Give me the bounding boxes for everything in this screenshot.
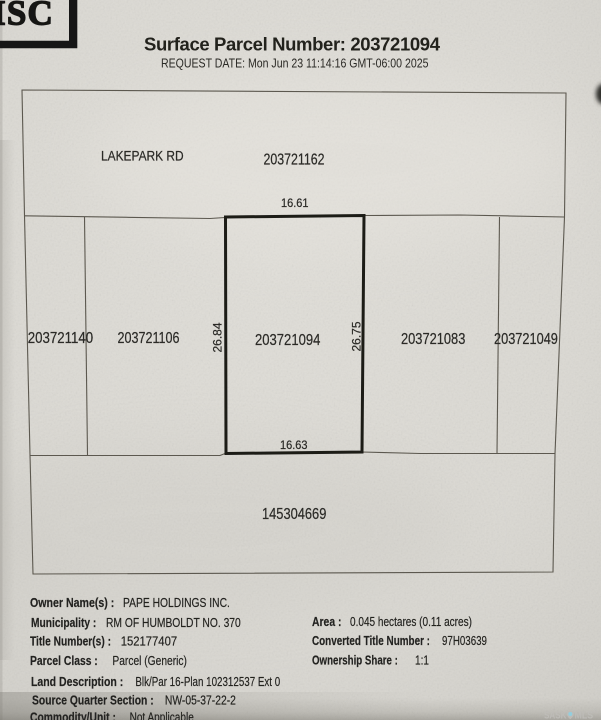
svg-text:16.61: 16.61: [281, 198, 309, 211]
svg-text:Commodity/Unit :: Commodity/Unit :: [30, 710, 116, 720]
svg-text:Converted Title Number :: Converted Title Number :: [312, 635, 430, 649]
svg-text:16.63: 16.63: [280, 440, 308, 453]
svg-text:152177407: 152177407: [121, 634, 178, 649]
svg-text:203721083: 203721083: [401, 331, 465, 348]
svg-text:ISC: ISC: [0, 0, 54, 32]
svg-text:®: ®: [594, 709, 599, 716]
svg-text:Blk/Par 16-Plan 102312537 Ext: Blk/Par 16-Plan 102312537 Ext 0: [135, 676, 280, 690]
svg-text:Area :: Area :: [312, 615, 341, 629]
svg-text:Municipality :: Municipality :: [31, 616, 96, 630]
svg-text:Parcel Class :: Parcel Class :: [30, 654, 98, 668]
svg-text:NW-05-37-22-2: NW-05-37-22-2: [165, 693, 236, 707]
svg-text:97H03639: 97H03639: [442, 635, 487, 649]
svg-text:Source Quarter Section :: Source Quarter Section :: [32, 693, 154, 707]
svg-text:Owner Name(s) :: Owner Name(s) :: [30, 595, 114, 610]
svg-text:203721049: 203721049: [494, 331, 558, 348]
svg-text:1:1: 1:1: [415, 653, 429, 668]
svg-text:145304669: 145304669: [262, 506, 326, 523]
svg-text:Parcel (Generic): Parcel (Generic): [112, 654, 187, 668]
svg-text:Title Number(s) :: Title Number(s) :: [30, 634, 111, 648]
svg-text:SASK: SASK: [544, 710, 567, 720]
svg-text:0.045 hectares (0.11 acres): 0.045 hectares (0.11 acres): [350, 615, 472, 630]
svg-text:26.75: 26.75: [350, 321, 364, 351]
svg-text:LAKEPARK RD: LAKEPARK RD: [101, 148, 184, 164]
svg-text:203721162: 203721162: [264, 150, 325, 168]
svg-text:PAPE HOLDINGS INC.: PAPE HOLDINGS INC.: [123, 596, 230, 610]
svg-text:RM OF HUMBOLDT NO. 370: RM OF HUMBOLDT NO. 370: [106, 616, 241, 630]
svg-text:MLS: MLS: [575, 710, 594, 720]
svg-text:Not Applicable: Not Applicable: [130, 710, 194, 720]
svg-text:REQUEST DATE: Mon Jun 23 11:14: REQUEST DATE: Mon Jun 23 11:14:16 GMT-06…: [161, 55, 429, 70]
svg-text:Land Description :: Land Description :: [31, 674, 123, 689]
svg-text:Ownership Share :: Ownership Share :: [312, 654, 398, 668]
svg-text:203721094: 203721094: [255, 332, 320, 349]
svg-text:203721106: 203721106: [118, 329, 180, 347]
svg-text:Surface Parcel Number: 2037210: Surface Parcel Number: 203721094: [144, 34, 441, 55]
svg-text:26.84: 26.84: [211, 322, 225, 352]
svg-text:203721140: 203721140: [28, 330, 93, 347]
